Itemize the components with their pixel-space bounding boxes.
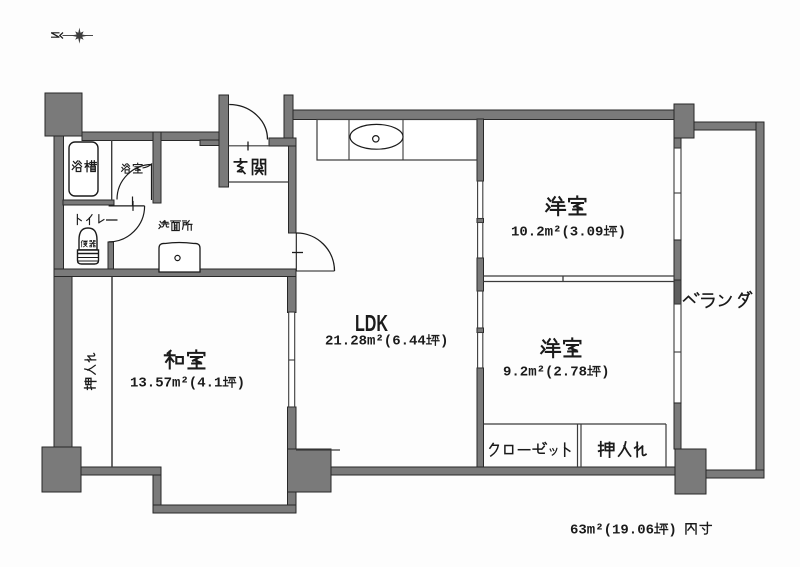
svg-text:): ) — [601, 365, 609, 381]
svg-text:): ) — [668, 523, 676, 539]
svg-text:LDK: LDK — [355, 310, 388, 336]
svg-text:21.28m²(6.44: 21.28m²(6.44 — [325, 334, 426, 350]
svg-text:): ) — [618, 225, 626, 241]
svg-text:10.2m²(3.09: 10.2m²(3.09 — [511, 225, 603, 241]
svg-text:63m²(19.06: 63m²(19.06 — [570, 523, 654, 539]
svg-text:9.2m²(2.78: 9.2m²(2.78 — [503, 365, 587, 381]
svg-text:): ) — [440, 334, 448, 350]
svg-text:): ) — [237, 376, 245, 392]
svg-text:13.57m²(4.1: 13.57m²(4.1 — [130, 376, 222, 392]
